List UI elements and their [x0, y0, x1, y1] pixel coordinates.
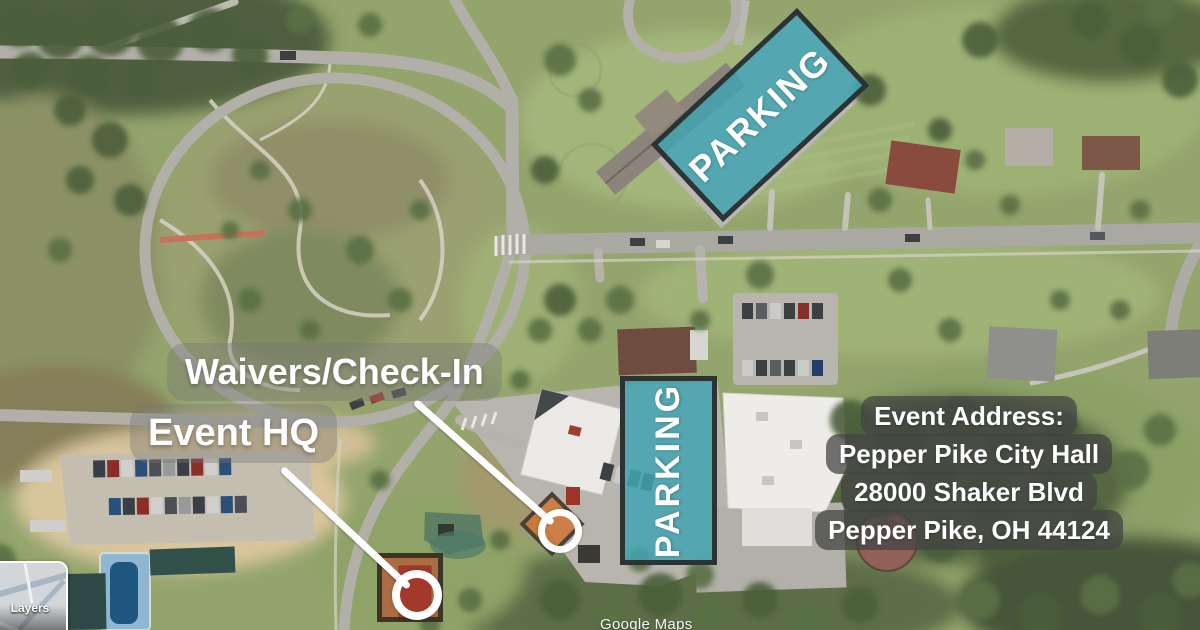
- parking-sign-city-hall-label: PARKING: [649, 383, 688, 558]
- address-line-2: Pepper Pike City Hall: [826, 434, 1112, 474]
- layers-label: Layers: [0, 601, 66, 615]
- google-maps-attribution[interactable]: Google Maps: [600, 616, 693, 630]
- event-hq-label: Event HQ: [130, 404, 337, 463]
- event-address-block: Event Address: Pepper Pike City Hall 280…: [817, 396, 1121, 548]
- waivers-marker-ring: [538, 509, 582, 553]
- parking-sign-city-hall: PARKING: [620, 376, 717, 565]
- address-line-3: 28000 Shaker Blvd: [841, 472, 1097, 512]
- address-line-4: Pepper Pike, OH 44124: [815, 510, 1123, 550]
- map-screenshot: PARKING PARKING Waivers/Check-In Event H…: [0, 0, 1200, 630]
- address-line-1: Event Address:: [861, 396, 1077, 436]
- event-hq-marker-ring: [392, 570, 442, 620]
- waivers-check-in-label: Waivers/Check-In: [167, 343, 502, 401]
- layers-control[interactable]: Layers: [0, 561, 68, 630]
